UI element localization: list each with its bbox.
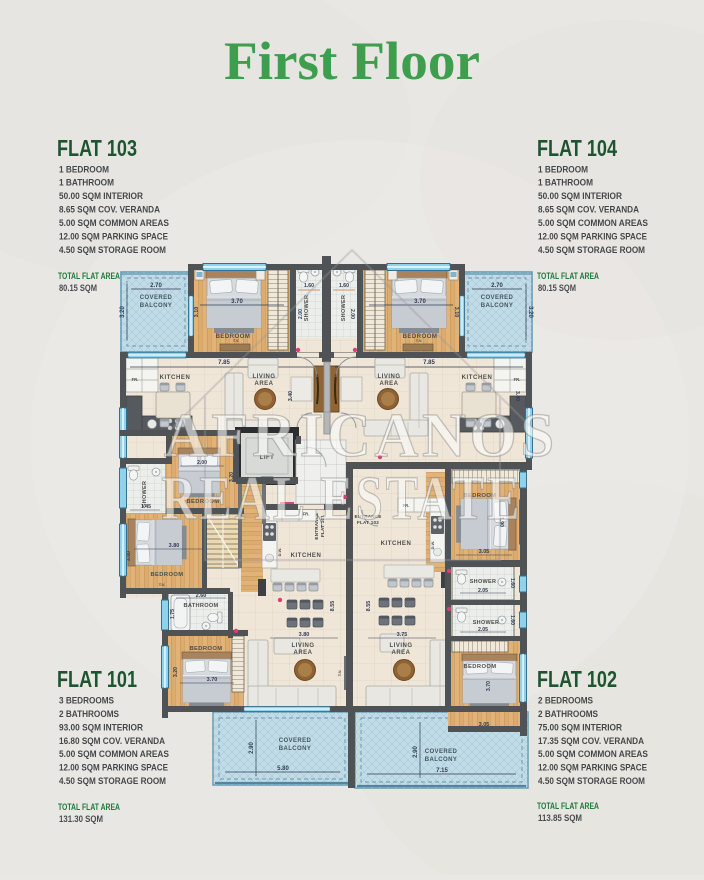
svg-text:1 BATHROOM: 1 BATHROOM (538, 177, 593, 188)
svg-text:COVERED: COVERED (425, 749, 458, 755)
svg-text:2.90: 2.90 (413, 746, 419, 758)
svg-text:3.05: 3.05 (479, 549, 490, 555)
svg-text:80.15 SQM: 80.15 SQM (538, 283, 576, 293)
svg-text:BEDROOM: BEDROOM (403, 334, 438, 340)
svg-text:D.W.: D.W. (277, 548, 282, 557)
svg-text:80.15 SQM: 80.15 SQM (59, 283, 97, 293)
svg-text:SHOWER: SHOWER (304, 295, 310, 322)
svg-text:3.80: 3.80 (169, 543, 180, 549)
svg-text:LIVING: LIVING (252, 374, 275, 380)
svg-text:BATHROOM: BATHROOM (184, 603, 219, 609)
svg-text:3.20: 3.20 (527, 306, 533, 318)
svg-text:1 BEDROOM: 1 BEDROOM (538, 163, 588, 174)
svg-text:KITCHEN: KITCHEN (291, 553, 322, 559)
svg-text:2 BATHROOMS: 2 BATHROOMS (59, 708, 119, 719)
svg-text:BEDROOM: BEDROOM (463, 664, 496, 670)
svg-text:4.50 SQM STORAGE ROOM: 4.50 SQM STORAGE ROOM (538, 244, 645, 255)
svg-text:3.80: 3.80 (299, 632, 310, 638)
svg-text:8.55: 8.55 (330, 601, 336, 612)
svg-text:2.90: 2.90 (249, 742, 255, 754)
svg-text:3.10: 3.10 (194, 307, 200, 318)
svg-text:8.65 SQM COV. VERANDA: 8.65 SQM COV. VERANDA (538, 204, 639, 215)
svg-text:5.00 SQM COMMON AREAS: 5.00 SQM COMMON AREAS (59, 748, 169, 759)
svg-text:1.75: 1.75 (170, 609, 176, 619)
svg-text:AREA: AREA (254, 381, 273, 387)
svg-text:FR.: FR. (132, 377, 139, 382)
svg-text:2.00: 2.00 (298, 309, 304, 319)
svg-text:12.00 SQM PARKING SPACE: 12.00 SQM PARKING SPACE (59, 231, 168, 242)
svg-text:1 BATHROOM: 1 BATHROOM (59, 177, 114, 188)
svg-text:3.70: 3.70 (207, 677, 218, 683)
svg-text:3.75: 3.75 (397, 632, 408, 638)
svg-text:12.00 SQM PARKING SPACE: 12.00 SQM PARKING SPACE (59, 762, 168, 773)
svg-text:TOTAL FLAT AREA: TOTAL FLAT AREA (58, 271, 120, 281)
svg-text:COVERED: COVERED (140, 295, 173, 301)
svg-text:5.00 SQM COMMON AREAS: 5.00 SQM COMMON AREAS (538, 748, 648, 759)
svg-text:3.10: 3.10 (453, 307, 459, 318)
svg-text:50.00 SQM INTERIOR: 50.00 SQM INTERIOR (538, 190, 622, 201)
svg-text:5.00 SQM COMMON AREAS: 5.00 SQM COMMON AREAS (538, 217, 648, 228)
svg-text:COVERED: COVERED (481, 295, 514, 301)
svg-text:FR.: FR. (514, 377, 521, 382)
svg-text:KITCHEN: KITCHEN (160, 375, 191, 381)
svg-text:SHOWER: SHOWER (470, 579, 497, 585)
svg-text:FLAT 102: FLAT 102 (537, 666, 617, 692)
svg-text:SHOWER: SHOWER (473, 620, 500, 626)
svg-text:LIVING: LIVING (291, 643, 314, 649)
svg-text:BALCONY: BALCONY (425, 757, 457, 763)
svg-text:First Floor: First Floor (224, 31, 480, 91)
svg-text:BEDROOM: BEDROOM (189, 646, 222, 652)
svg-text:8.55: 8.55 (366, 601, 372, 612)
svg-text:BEDROOM: BEDROOM (150, 572, 183, 578)
svg-text:FLAT 103: FLAT 103 (57, 135, 137, 161)
svg-text:LIVING: LIVING (389, 643, 412, 649)
svg-text:12.00 SQM PARKING SPACE: 12.00 SQM PARKING SPACE (538, 231, 647, 242)
svg-text:3.70: 3.70 (486, 681, 492, 691)
svg-text:D.W.: D.W. (430, 541, 435, 550)
svg-text:2 BEDROOMS: 2 BEDROOMS (538, 695, 593, 706)
svg-text:2.70: 2.70 (491, 283, 503, 289)
svg-text:AFRICANOS: AFRICANOS (164, 402, 558, 470)
svg-text:113.85 SQM: 113.85 SQM (538, 813, 582, 823)
svg-text:BALCONY: BALCONY (279, 746, 311, 752)
svg-text:12.00 SQM PARKING SPACE: 12.00 SQM PARKING SPACE (538, 762, 647, 773)
svg-text:AREA: AREA (391, 650, 410, 656)
svg-text:3.70: 3.70 (231, 299, 243, 305)
svg-text:3.70: 3.70 (414, 299, 426, 305)
svg-text:3.20: 3.20 (120, 306, 126, 318)
svg-text:1 BEDROOM: 1 BEDROOM (59, 163, 109, 174)
svg-text:93.00 SQM INTERIOR: 93.00 SQM INTERIOR (59, 721, 143, 732)
svg-text:3.40: 3.40 (514, 391, 520, 401)
svg-text:3 BEDROOMS: 3 BEDROOMS (59, 695, 114, 706)
svg-text:8.65 SQM COV. VERANDA: 8.65 SQM COV. VERANDA (59, 204, 160, 215)
svg-text:SHOWER: SHOWER (341, 295, 347, 322)
svg-text:1.60: 1.60 (509, 615, 515, 625)
svg-text:TOTAL FLAT AREA: TOTAL FLAT AREA (537, 801, 599, 811)
svg-text:5.80: 5.80 (277, 766, 289, 772)
svg-text:COVERED: COVERED (279, 738, 312, 744)
svg-text:TOTAL FLAT AREA: TOTAL FLAT AREA (58, 802, 120, 812)
svg-text:BEDROOM: BEDROOM (216, 334, 251, 340)
svg-text:T.V.: T.V. (337, 670, 342, 677)
svg-text:7.85: 7.85 (218, 360, 230, 366)
svg-text:2.00: 2.00 (349, 309, 355, 319)
svg-text:T.V.: T.V. (159, 582, 166, 587)
svg-text:REAL ESTATE: REAL ESTATE (162, 465, 523, 533)
svg-text:AREA: AREA (293, 650, 312, 656)
svg-text:1.45: 1.45 (141, 504, 151, 510)
svg-text:16.80 SQM COV. VERANDA: 16.80 SQM COV. VERANDA (59, 735, 165, 746)
svg-text:KITCHEN: KITCHEN (381, 541, 412, 547)
svg-text:FLAT 101: FLAT 101 (57, 666, 137, 692)
svg-text:3.40: 3.40 (288, 391, 294, 401)
svg-text:FLAT 104: FLAT 104 (537, 135, 617, 161)
svg-text:KITCHEN: KITCHEN (462, 375, 493, 381)
svg-text:2.70: 2.70 (150, 283, 162, 289)
svg-text:4.50 SQM STORAGE ROOM: 4.50 SQM STORAGE ROOM (538, 775, 645, 786)
svg-text:BALCONY: BALCONY (481, 303, 513, 309)
svg-text:2 BATHROOMS: 2 BATHROOMS (538, 708, 598, 719)
svg-text:2.05: 2.05 (478, 588, 488, 594)
svg-text:4.50 SQM STORAGE ROOM: 4.50 SQM STORAGE ROOM (59, 244, 166, 255)
svg-text:LIVING: LIVING (377, 374, 400, 380)
svg-text:1.60: 1.60 (339, 283, 349, 289)
svg-text:5.00 SQM COMMON AREAS: 5.00 SQM COMMON AREAS (59, 217, 169, 228)
svg-text:17.35 SQM COV. VERANDA: 17.35 SQM COV. VERANDA (538, 735, 644, 746)
svg-text:7.15: 7.15 (436, 768, 448, 774)
svg-text:AREA: AREA (379, 381, 398, 387)
svg-text:7.85: 7.85 (423, 360, 435, 366)
svg-text:2.05: 2.05 (478, 627, 488, 633)
svg-text:1.60: 1.60 (509, 578, 515, 588)
svg-text:BALCONY: BALCONY (140, 303, 172, 309)
svg-text:50.00 SQM INTERIOR: 50.00 SQM INTERIOR (59, 190, 143, 201)
svg-text:131.30 SQM: 131.30 SQM (59, 814, 103, 824)
svg-text:TOTAL FLAT AREA: TOTAL FLAT AREA (537, 271, 599, 281)
svg-text:4.50 SQM STORAGE ROOM: 4.50 SQM STORAGE ROOM (59, 775, 166, 786)
svg-text:75.00 SQM INTERIOR: 75.00 SQM INTERIOR (538, 721, 622, 732)
svg-text:3.20: 3.20 (173, 667, 179, 677)
